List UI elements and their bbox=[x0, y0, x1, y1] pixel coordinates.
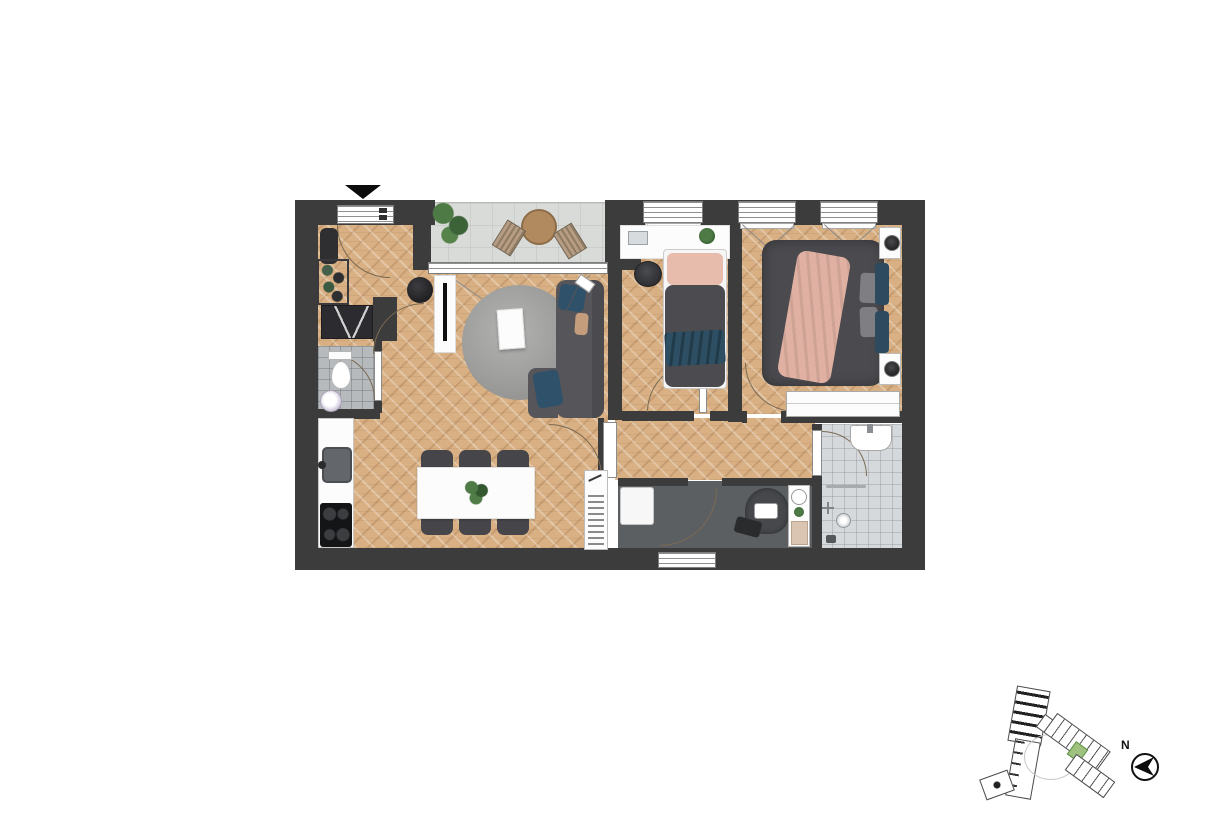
master-wardrobe bbox=[786, 391, 900, 417]
window-bedroom-small bbox=[643, 201, 703, 223]
wall-left bbox=[295, 200, 318, 570]
kitchen-radiator-fins bbox=[588, 495, 604, 545]
wall-right bbox=[902, 200, 925, 570]
kitchen-faucet bbox=[318, 461, 326, 469]
nightstand-lamp-bottom bbox=[884, 361, 900, 377]
shower-arm-v bbox=[827, 502, 829, 514]
wall-bedrooms bbox=[728, 225, 742, 422]
desk-plant bbox=[699, 228, 715, 244]
north-arrow-icon bbox=[1128, 750, 1162, 784]
pillow-blue-2 bbox=[875, 311, 889, 353]
utility-toilet-lid bbox=[754, 503, 778, 519]
window-bedroom-master-2 bbox=[820, 201, 878, 223]
dining-table-plant bbox=[461, 477, 491, 507]
wc-door bbox=[374, 351, 382, 401]
wall-bedroom-small-bottom-right bbox=[710, 411, 730, 421]
hall-pouf bbox=[407, 277, 433, 303]
wall-bedroom-master-bottom-left bbox=[742, 411, 747, 423]
utility-sink bbox=[791, 489, 807, 505]
window-sill-2 bbox=[740, 223, 794, 229]
nightstand-lamp-top bbox=[884, 235, 900, 251]
towel-rail bbox=[826, 485, 866, 488]
kitchen-cooktop bbox=[320, 503, 352, 547]
entrance-marker-triangle bbox=[345, 185, 381, 199]
bathroom-accessory bbox=[826, 535, 836, 543]
desk-laptop bbox=[628, 231, 648, 245]
window-sill-3 bbox=[822, 223, 876, 229]
apartment-floor-plan bbox=[295, 185, 925, 585]
coffee-table bbox=[497, 308, 526, 350]
floor-hallway bbox=[615, 418, 815, 480]
entry-door-handle bbox=[379, 208, 387, 213]
balcony-door bbox=[428, 262, 608, 274]
balcony-table bbox=[521, 209, 557, 245]
floor-plan-page: N bbox=[0, 0, 1220, 813]
wall-bedroom-small-bottom-left bbox=[622, 411, 694, 421]
pillow-blue-1 bbox=[875, 263, 889, 305]
sofa-cushion-tan bbox=[574, 313, 589, 336]
washing-machine bbox=[620, 487, 654, 525]
bathroom-faucet bbox=[867, 424, 873, 433]
balcony-plant bbox=[430, 199, 474, 247]
kitchen-sink bbox=[322, 447, 352, 483]
utility-drawer bbox=[791, 521, 808, 545]
hall-wardrobe bbox=[321, 305, 373, 339]
hall-shoe-rack bbox=[317, 259, 349, 305]
compass-svg bbox=[1128, 750, 1162, 784]
wc-toilet-tank bbox=[328, 351, 352, 360]
wall-bottom bbox=[295, 548, 925, 570]
single-bed-blanket bbox=[664, 329, 726, 366]
utility-window bbox=[658, 552, 716, 568]
bathroom-door bbox=[812, 430, 822, 476]
wall-hallway-bottom-left bbox=[618, 478, 688, 486]
window-bedroom-master-1 bbox=[738, 201, 796, 223]
shower-drain bbox=[836, 513, 851, 528]
entry-door-handle-2 bbox=[379, 215, 387, 220]
single-bed-pillow bbox=[667, 253, 723, 285]
wall-living-bedroom-small bbox=[608, 264, 622, 420]
wc-corner-sink bbox=[320, 390, 342, 412]
desk-stool bbox=[634, 261, 662, 287]
tv-screen bbox=[443, 283, 447, 341]
wc-toilet-bowl bbox=[331, 361, 351, 389]
sofa-backrest bbox=[592, 280, 604, 418]
utility-plant bbox=[794, 507, 804, 517]
